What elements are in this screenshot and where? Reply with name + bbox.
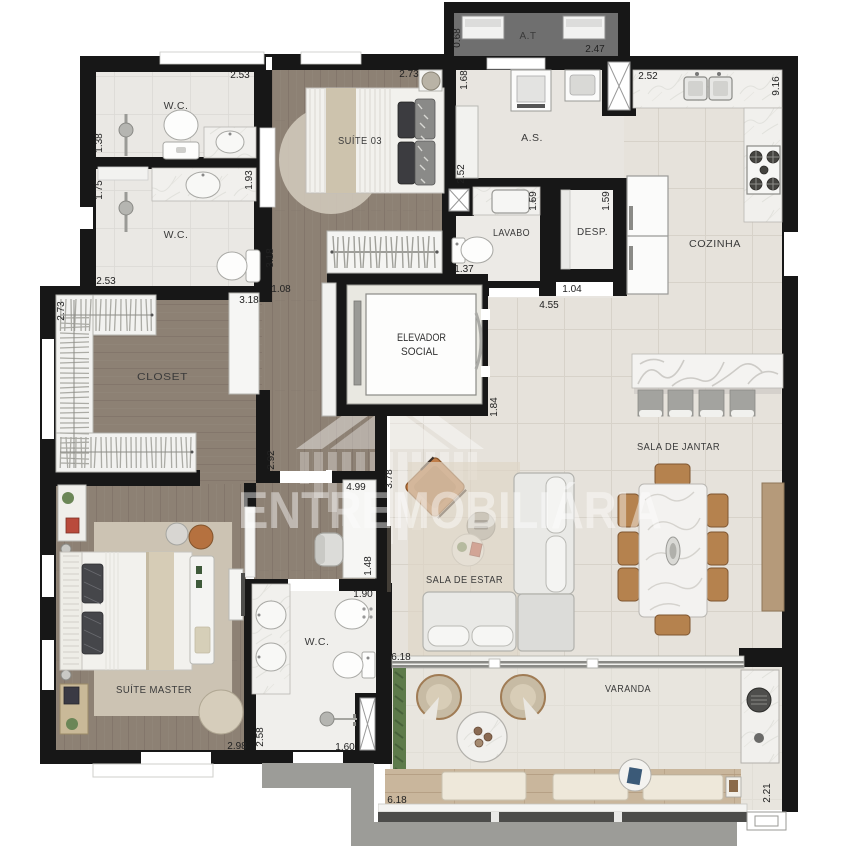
svg-text:1.60: 1.60 xyxy=(335,742,355,753)
svg-text:LAVABO: LAVABO xyxy=(493,227,530,239)
svg-text:3.18: 3.18 xyxy=(239,295,259,306)
svg-text:A.T: A.T xyxy=(519,31,536,42)
svg-text:SUÍTE 03: SUÍTE 03 xyxy=(338,134,382,147)
svg-text:2.52: 2.52 xyxy=(638,71,658,82)
svg-text:VARANDA: VARANDA xyxy=(605,683,651,695)
svg-text:6.18: 6.18 xyxy=(391,652,411,663)
svg-text:4.99: 4.99 xyxy=(346,482,366,493)
svg-text:1.38: 1.38 xyxy=(94,133,105,153)
svg-text:SOCIAL: SOCIAL xyxy=(401,346,438,358)
svg-text:4.55: 4.55 xyxy=(539,300,559,311)
svg-text:SALA DE JANTAR: SALA DE JANTAR xyxy=(637,441,720,453)
svg-text:1.59: 1.59 xyxy=(601,191,612,211)
svg-text:2.58: 2.58 xyxy=(255,727,266,747)
svg-text:COZINHA: COZINHA xyxy=(689,238,741,250)
svg-text:W.C.: W.C. xyxy=(164,100,189,112)
svg-text:9.16: 9.16 xyxy=(771,76,782,96)
svg-text:2.98: 2.98 xyxy=(227,741,247,752)
svg-text:DESP.: DESP. xyxy=(577,226,608,238)
svg-text:2.52: 2.52 xyxy=(456,164,467,184)
svg-text:3.78: 3.78 xyxy=(384,469,395,489)
svg-text:3.18: 3.18 xyxy=(265,248,276,268)
svg-text:ENTREMOBILIÁRIA: ENTREMOBILIÁRIA xyxy=(238,482,662,540)
svg-text:SALA DE ESTAR: SALA DE ESTAR xyxy=(426,574,503,586)
svg-text:W.C.: W.C. xyxy=(305,636,330,648)
svg-text:6.18: 6.18 xyxy=(387,795,407,806)
svg-text:1.48: 1.48 xyxy=(363,556,374,576)
svg-text:CLOSET: CLOSET xyxy=(137,371,188,383)
svg-text:2.21: 2.21 xyxy=(762,783,773,803)
svg-text:2.53: 2.53 xyxy=(230,70,250,81)
svg-text:2.47: 2.47 xyxy=(585,44,605,55)
svg-text:ELEVADOR: ELEVADOR xyxy=(397,332,446,344)
svg-text:A.S.: A.S. xyxy=(521,132,543,144)
svg-text:0.68: 0.68 xyxy=(452,28,463,48)
svg-text:2.73: 2.73 xyxy=(56,301,67,321)
svg-text:1.08: 1.08 xyxy=(271,284,291,295)
svg-text:1.93: 1.93 xyxy=(244,170,255,190)
svg-text:2.73: 2.73 xyxy=(399,69,419,80)
svg-text:1.59: 1.59 xyxy=(528,191,539,211)
svg-text:1.37: 1.37 xyxy=(454,264,474,275)
svg-text:SUÍTE MASTER: SUÍTE MASTER xyxy=(116,683,192,696)
svg-text:1.04: 1.04 xyxy=(562,284,582,295)
svg-text:2.53: 2.53 xyxy=(96,276,116,287)
svg-text:W.C.: W.C. xyxy=(164,229,189,241)
svg-text:1.84: 1.84 xyxy=(489,397,500,417)
svg-text:2.92: 2.92 xyxy=(266,450,277,470)
svg-text:1.68: 1.68 xyxy=(459,70,470,90)
svg-text:1.75: 1.75 xyxy=(94,180,105,200)
svg-text:1.90: 1.90 xyxy=(353,589,373,600)
